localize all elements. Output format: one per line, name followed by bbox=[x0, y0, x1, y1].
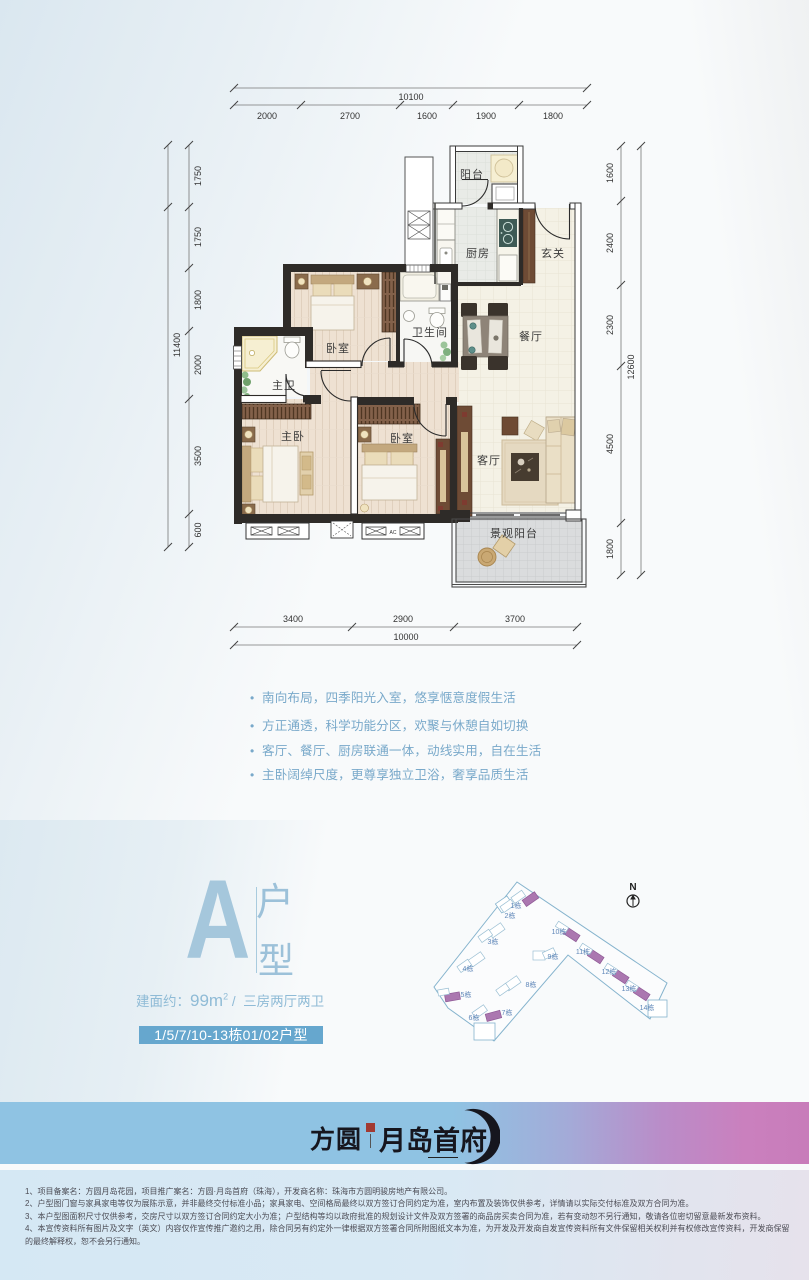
svg-text:卧室: 卧室 bbox=[390, 431, 414, 445]
svg-text:10000: 10000 bbox=[393, 632, 418, 642]
svg-text:主卫: 主卫 bbox=[272, 379, 296, 392]
svg-text:餐厅: 餐厅 bbox=[519, 329, 543, 343]
svg-text:2400: 2400 bbox=[605, 233, 615, 253]
svg-text:1600: 1600 bbox=[417, 111, 437, 121]
svg-text:玄关: 玄关 bbox=[541, 246, 565, 260]
svg-text:阳台: 阳台 bbox=[460, 167, 484, 181]
svg-text:1600: 1600 bbox=[605, 163, 615, 183]
svg-text:景观阳台: 景观阳台 bbox=[490, 526, 538, 540]
svg-text:2300: 2300 bbox=[605, 315, 615, 335]
svg-text:4500: 4500 bbox=[605, 434, 615, 454]
svg-text:4栋: 4栋 bbox=[463, 964, 474, 973]
svg-text:11400: 11400 bbox=[172, 333, 182, 357]
svg-text:1800: 1800 bbox=[605, 539, 615, 559]
svg-text:6栋: 6栋 bbox=[469, 1013, 480, 1022]
svg-text:AC: AC bbox=[390, 530, 397, 536]
svg-text:3700: 3700 bbox=[505, 614, 525, 624]
svg-text:7栋: 7栋 bbox=[502, 1008, 513, 1017]
svg-text:2700: 2700 bbox=[340, 111, 360, 121]
svg-text:12600: 12600 bbox=[626, 354, 636, 379]
svg-text:8栋: 8栋 bbox=[526, 980, 537, 989]
svg-text:N: N bbox=[629, 882, 636, 893]
svg-text:厨房: 厨房 bbox=[466, 247, 490, 260]
svg-text:3400: 3400 bbox=[283, 614, 303, 624]
svg-text:3500: 3500 bbox=[193, 446, 203, 466]
svg-text:10栋: 10栋 bbox=[552, 927, 567, 936]
svg-text:2900: 2900 bbox=[393, 614, 413, 624]
svg-text:1800: 1800 bbox=[543, 111, 563, 121]
svg-text:11栋: 11栋 bbox=[576, 947, 590, 956]
svg-text:卫生间: 卫生间 bbox=[412, 325, 448, 339]
svg-text:2000: 2000 bbox=[193, 355, 203, 375]
svg-text:14栋: 14栋 bbox=[640, 1003, 655, 1012]
svg-text:10100: 10100 bbox=[398, 92, 423, 102]
svg-text:1800: 1800 bbox=[193, 290, 203, 310]
svg-text:主卧: 主卧 bbox=[281, 430, 305, 443]
svg-text:3栋: 3栋 bbox=[488, 937, 499, 946]
svg-text:卧室: 卧室 bbox=[326, 341, 350, 355]
svg-text:2000: 2000 bbox=[257, 111, 277, 121]
svg-text:2栋: 2栋 bbox=[505, 911, 516, 920]
svg-text:1栋: 1栋 bbox=[511, 901, 522, 910]
svg-text:600: 600 bbox=[193, 522, 203, 537]
svg-text:13栋: 13栋 bbox=[622, 984, 637, 993]
svg-text:1750: 1750 bbox=[193, 166, 203, 186]
svg-text:客厅: 客厅 bbox=[477, 453, 501, 467]
svg-text:9栋: 9栋 bbox=[548, 952, 559, 961]
svg-text:12栋: 12栋 bbox=[602, 967, 617, 976]
svg-text:1900: 1900 bbox=[476, 111, 496, 121]
svg-text:1750: 1750 bbox=[193, 227, 203, 247]
svg-text:5栋: 5栋 bbox=[461, 990, 472, 999]
